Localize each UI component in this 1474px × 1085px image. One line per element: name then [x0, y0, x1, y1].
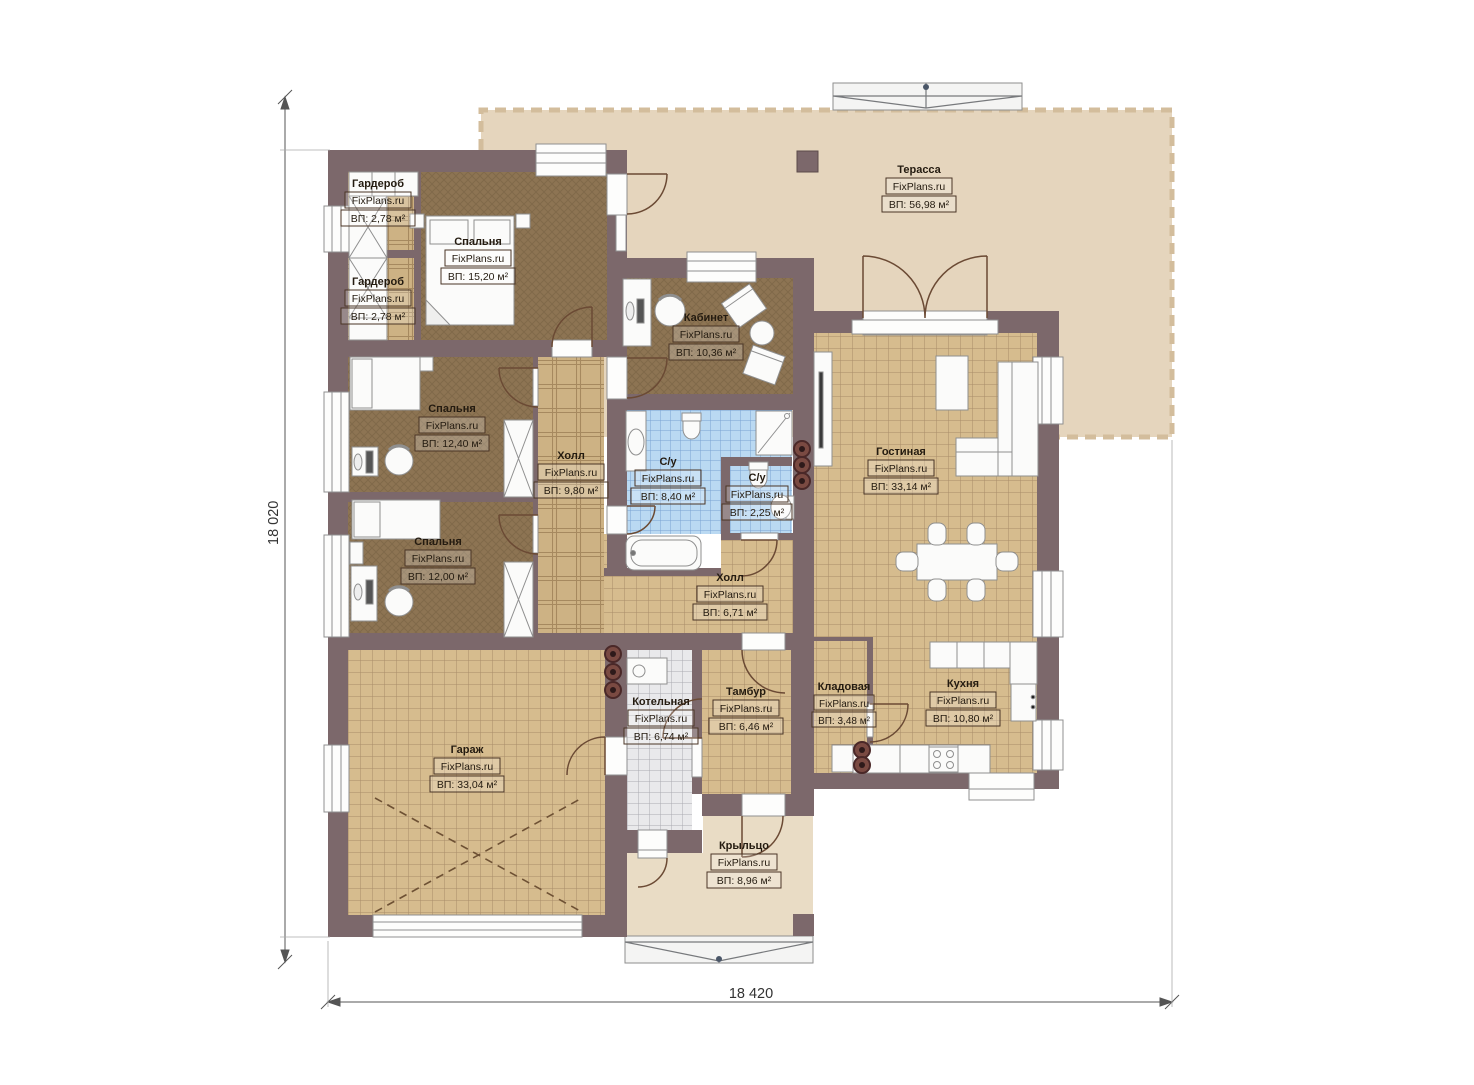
svg-text:Кухня: Кухня — [947, 678, 979, 690]
svg-text:FixPlans.ru: FixPlans.ru — [635, 713, 688, 725]
svg-text:ВП: 2,78 м²: ВП: 2,78 м² — [351, 213, 406, 225]
svg-text:ВП: 33,04 м²: ВП: 33,04 м² — [437, 779, 498, 791]
svg-text:С/у: С/у — [659, 456, 677, 468]
svg-text:FixPlans.ru: FixPlans.ru — [704, 589, 757, 601]
svg-text:ВП: 6,71 м²: ВП: 6,71 м² — [703, 607, 758, 619]
svg-text:FixPlans.ru: FixPlans.ru — [545, 467, 598, 479]
svg-text:Гардероб: Гардероб — [352, 178, 404, 190]
svg-text:ВП: 8,96 м²: ВП: 8,96 м² — [717, 875, 772, 887]
svg-text:FixPlans.ru: FixPlans.ru — [452, 253, 505, 265]
svg-text:ВП: 3,48 м²: ВП: 3,48 м² — [818, 716, 871, 727]
svg-text:ВП: 10,80 м²: ВП: 10,80 м² — [933, 713, 994, 725]
svg-text:Котельная: Котельная — [632, 696, 690, 708]
svg-text:ВП: 9,80 м²: ВП: 9,80 м² — [544, 485, 599, 497]
svg-text:Гараж: Гараж — [451, 744, 484, 756]
svg-text:ВП: 10,36 м²: ВП: 10,36 м² — [676, 347, 737, 359]
svg-text:Спальня: Спальня — [454, 236, 502, 248]
svg-text:ВП: 6,46 м²: ВП: 6,46 м² — [719, 721, 774, 733]
svg-text:Холл: Холл — [557, 450, 585, 462]
svg-text:FixPlans.ru: FixPlans.ru — [731, 489, 784, 501]
svg-text:Холл: Холл — [716, 572, 744, 584]
svg-text:ВП: 6,74 м²: ВП: 6,74 м² — [634, 731, 689, 743]
svg-text:ВП: 12,40 м²: ВП: 12,40 м² — [422, 438, 483, 450]
svg-text:Терасса: Терасса — [897, 164, 941, 176]
svg-text:FixPlans.ru: FixPlans.ru — [937, 695, 990, 707]
svg-text:ВП: 2,25 м²: ВП: 2,25 м² — [730, 507, 785, 519]
svg-text:Спальня: Спальня — [428, 403, 476, 415]
svg-text:FixPlans.ru: FixPlans.ru — [352, 293, 405, 305]
svg-text:Спальня: Спальня — [414, 536, 462, 548]
svg-text:ВП: 56,98 м²: ВП: 56,98 м² — [889, 199, 950, 211]
svg-text:ВП: 2,78 м²: ВП: 2,78 м² — [351, 311, 406, 323]
svg-text:ВП: 15,20 м²: ВП: 15,20 м² — [448, 271, 509, 283]
svg-text:FixPlans.ru: FixPlans.ru — [720, 703, 773, 715]
svg-text:Крыльцо: Крыльцо — [719, 840, 769, 852]
svg-text:FixPlans.ru: FixPlans.ru — [426, 420, 479, 432]
svg-text:ВП: 8,40 м²: ВП: 8,40 м² — [641, 491, 696, 503]
svg-text:FixPlans.ru: FixPlans.ru — [642, 473, 695, 485]
svg-text:С/у: С/у — [748, 472, 766, 484]
svg-text:Кладовая: Кладовая — [818, 681, 871, 693]
svg-text:Гостиная: Гостиная — [876, 446, 926, 458]
svg-text:FixPlans.ru: FixPlans.ru — [718, 857, 771, 869]
svg-text:Гардероб: Гардероб — [352, 276, 404, 288]
svg-text:FixPlans.ru: FixPlans.ru — [893, 181, 946, 193]
svg-text:FixPlans.ru: FixPlans.ru — [680, 329, 733, 341]
svg-text:FixPlans.ru: FixPlans.ru — [352, 195, 405, 207]
svg-text:FixPlans.ru: FixPlans.ru — [441, 761, 494, 773]
svg-text:FixPlans.ru: FixPlans.ru — [819, 699, 869, 710]
svg-text:ВП: 33,14 м²: ВП: 33,14 м² — [871, 481, 932, 493]
svg-text:FixPlans.ru: FixPlans.ru — [412, 553, 465, 565]
svg-text:18 420: 18 420 — [729, 986, 773, 1002]
svg-text:Кабинет: Кабинет — [684, 312, 729, 324]
svg-text:FixPlans.ru: FixPlans.ru — [875, 463, 928, 475]
svg-text:Тамбур: Тамбур — [726, 686, 766, 698]
svg-text:18 020: 18 020 — [266, 501, 282, 545]
svg-text:ВП: 12,00 м²: ВП: 12,00 м² — [408, 571, 469, 583]
